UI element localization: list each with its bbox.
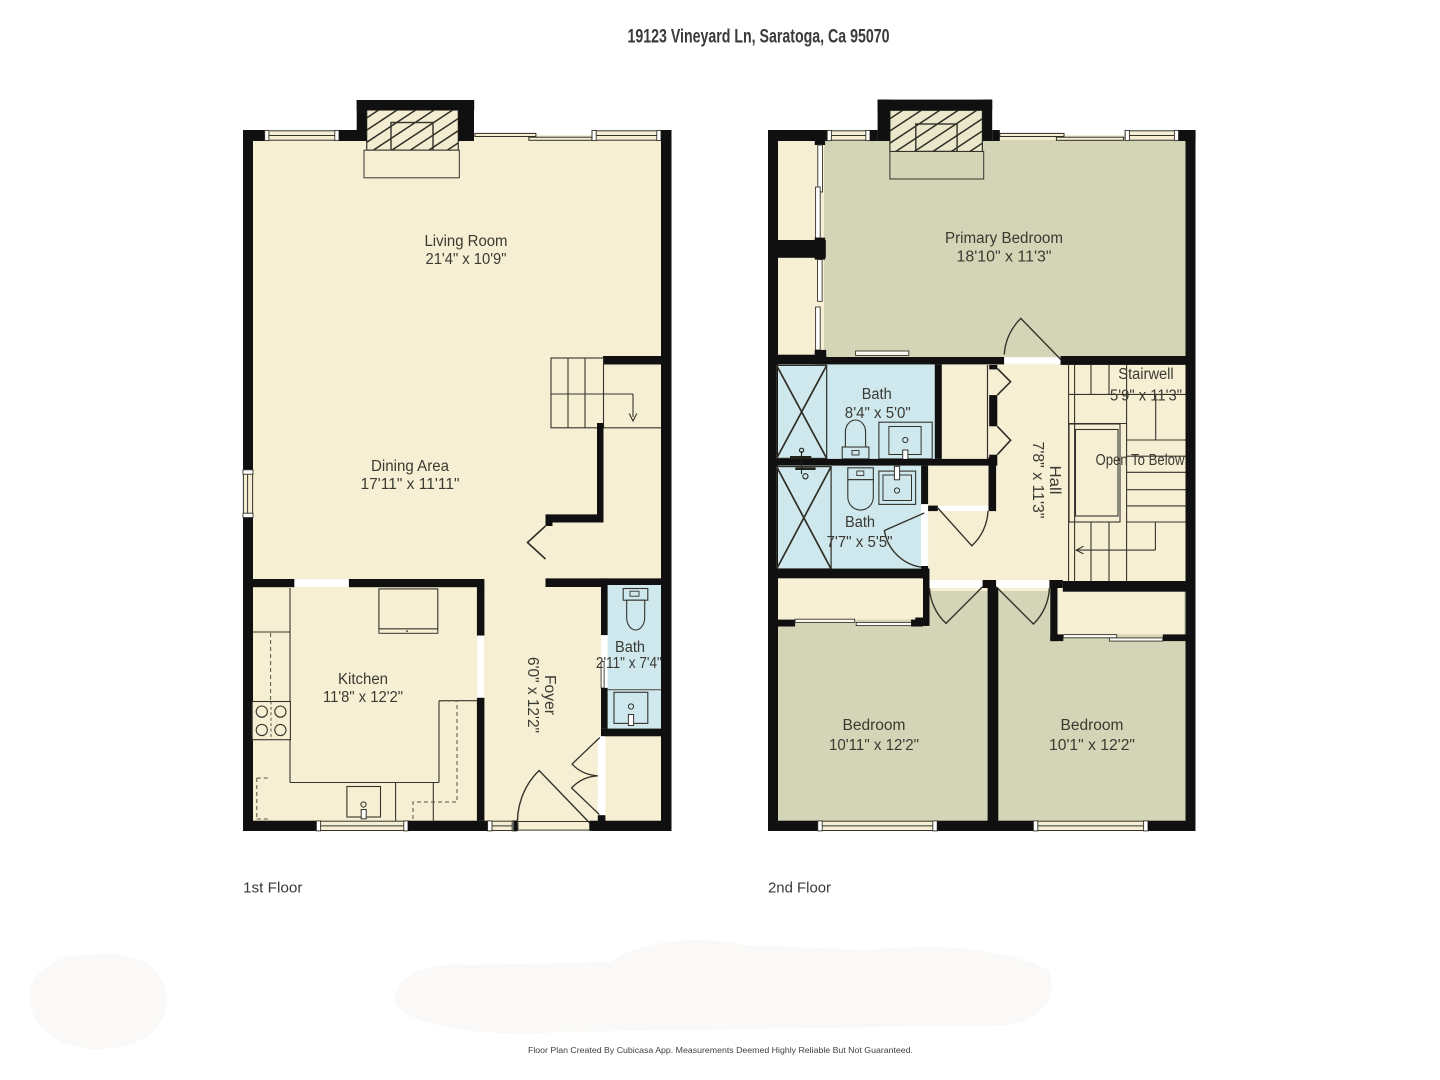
svg-text:Bath: Bath — [845, 514, 875, 531]
svg-text:Foyer: Foyer — [541, 675, 558, 715]
svg-text:Stairwell: Stairwell — [1118, 366, 1173, 383]
svg-text:Hall: Hall — [1046, 466, 1063, 495]
svg-text:Bedroom: Bedroom — [843, 717, 906, 734]
svg-text:Open To Below: Open To Below — [1096, 452, 1186, 469]
svg-text:18'10" x 11'3": 18'10" x 11'3" — [957, 249, 1052, 266]
svg-text:Primary Bedroom: Primary Bedroom — [945, 230, 1063, 247]
svg-text:10'1" x 12'2": 10'1" x 12'2" — [1049, 737, 1135, 754]
svg-text:2nd Floor: 2nd Floor — [768, 880, 831, 897]
svg-text:21'4" x 10'9": 21'4" x 10'9" — [426, 251, 507, 268]
svg-text:6'0" x 12'2": 6'0" x 12'2" — [524, 657, 541, 733]
svg-text:Bath: Bath — [862, 386, 892, 403]
svg-text:Bath: Bath — [615, 639, 645, 656]
svg-text:Bedroom: Bedroom — [1061, 717, 1124, 734]
svg-text:19123 Vineyard Ln, Saratoga, C: 19123 Vineyard Ln, Saratoga, Ca 95070 — [628, 26, 890, 47]
svg-text:2'11" x 7'4": 2'11" x 7'4" — [596, 655, 662, 672]
svg-text:Dining Area: Dining Area — [371, 458, 449, 475]
svg-text:11'8" x 12'2": 11'8" x 12'2" — [323, 689, 403, 706]
svg-text:5'9" x 11'3": 5'9" x 11'3" — [1110, 388, 1182, 405]
svg-text:17'11" x 11'11": 17'11" x 11'11" — [361, 476, 460, 493]
svg-text:7'7" x 5'5": 7'7" x 5'5" — [827, 534, 893, 551]
svg-text:10'11" x 12'2": 10'11" x 12'2" — [829, 737, 919, 754]
svg-text:Floor Plan Created By Cubicasa: Floor Plan Created By Cubicasa App. Meas… — [528, 1045, 913, 1055]
svg-text:Living Room: Living Room — [425, 233, 508, 250]
svg-text:7'8" x 11'3": 7'8" x 11'3" — [1029, 442, 1046, 519]
svg-text:8'4" x 5'0": 8'4" x 5'0" — [845, 405, 911, 422]
svg-text:1st Floor: 1st Floor — [243, 880, 303, 897]
svg-text:Kitchen: Kitchen — [338, 671, 388, 688]
